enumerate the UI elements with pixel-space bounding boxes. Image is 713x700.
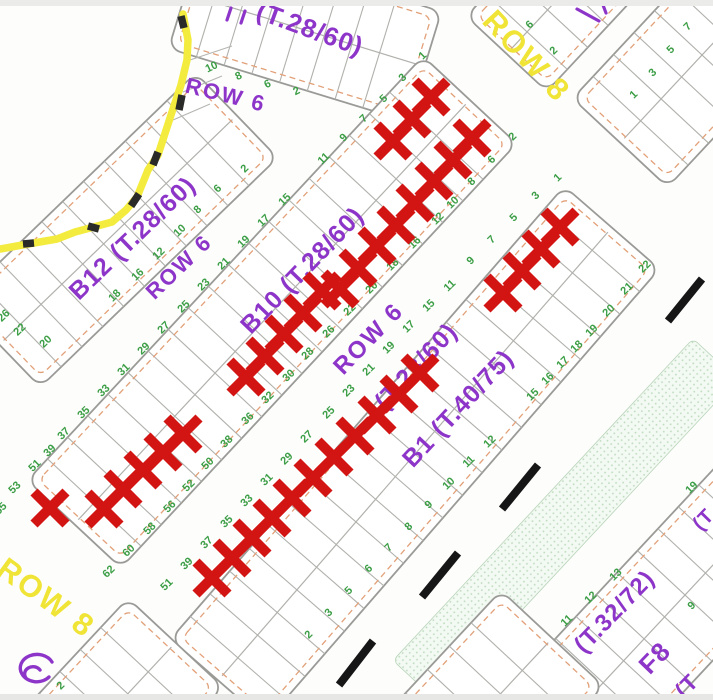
road-label: ROW 8	[0, 551, 102, 645]
road-centerline-dash	[502, 465, 538, 509]
boundary-dash	[153, 152, 158, 165]
plot-number: 15	[420, 297, 437, 314]
plot-map-svg: 1086226810121618262220135791115171921232…	[0, 0, 713, 700]
plot-number: 35	[218, 513, 235, 530]
plot-number: 29	[278, 450, 295, 467]
road-centerline-dash	[339, 641, 373, 685]
plot-number: 37	[198, 534, 215, 551]
plot-map[interactable]: 1086226810121618262220135791115171921232…	[0, 0, 713, 700]
plot-number: 62	[100, 563, 117, 580]
plot-number: 23	[340, 382, 357, 399]
plot-number: 5	[508, 211, 521, 224]
boundary-dash	[179, 95, 182, 110]
spiral-scribble	[20, 654, 52, 681]
plot-number: 55	[0, 500, 9, 517]
plot-number: 53	[6, 479, 23, 496]
plot-number: 39	[178, 555, 195, 572]
plot-number: 7	[486, 233, 499, 246]
plot-number: 1	[552, 171, 565, 184]
boundary-dash	[88, 226, 99, 229]
bottom-edge-strip	[0, 694, 713, 700]
top-edge-strip	[0, 0, 713, 6]
boundary-dash	[23, 243, 34, 244]
road-centerline-dash	[422, 553, 458, 597]
plot-number: 3	[530, 189, 543, 202]
plot-number: 27	[298, 428, 315, 445]
plot-number: 9	[465, 254, 478, 267]
road-centerline-dash	[668, 279, 702, 321]
plot-number: 25	[320, 404, 337, 421]
plot-number: 51	[158, 576, 175, 593]
boundary-dash	[181, 16, 184, 28]
plot-number: 33	[238, 492, 255, 509]
plot-number: 11	[442, 277, 459, 294]
